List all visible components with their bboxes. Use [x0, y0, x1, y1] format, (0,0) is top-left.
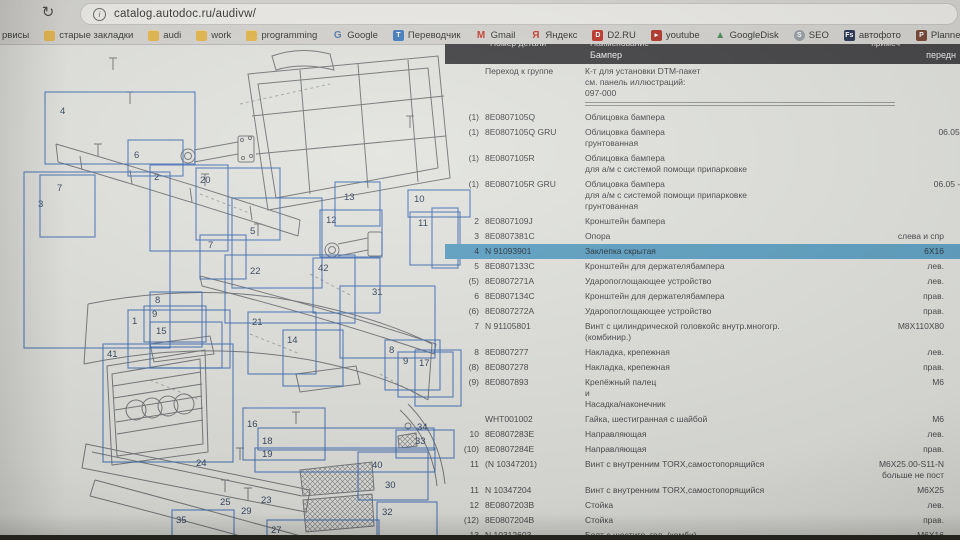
- part-number[interactable]: 8E0807134C: [485, 291, 585, 302]
- callout-number[interactable]: 13: [344, 192, 355, 203]
- part-note: лев.: [784, 500, 960, 511]
- part-description: Облицовка бамперагрунтованная: [585, 127, 784, 149]
- url-text: catalog.autodoc.ru/audivw/: [114, 8, 256, 20]
- callout-box[interactable]: [150, 292, 202, 347]
- row-callout-number: 11: [445, 459, 485, 470]
- bookmark-icon: T: [393, 30, 404, 41]
- row-callout-number: (6): [445, 306, 485, 317]
- part-number[interactable]: 8E0807105Q GRU: [485, 127, 585, 138]
- table-header-clipped-row: Номер детали Наименование примеч: [445, 44, 960, 50]
- parts-diagram: 4367220572212131011423189115211489174116…: [0, 44, 472, 540]
- part-note: прав.: [784, 444, 960, 455]
- section-title: Бампер: [590, 50, 622, 60]
- table-row[interactable]: 28E0807109JКронштейн бампера: [445, 214, 960, 229]
- folder-icon: [246, 30, 257, 41]
- table-row[interactable]: 7N 91105801Винт с цилиндрической головко…: [445, 319, 960, 345]
- part-description: Винт с цилиндрической головкойс внутр.мн…: [585, 321, 784, 343]
- table-row[interactable]: (1)8E0807105Q GRUОблицовка бамперагрунто…: [445, 125, 960, 151]
- part-description: Стойка: [585, 515, 784, 526]
- bookmark-item[interactable]: SSEO: [794, 30, 829, 41]
- row-callout-number: 8: [445, 347, 485, 358]
- callout-box[interactable]: [232, 198, 322, 288]
- bookmark-item[interactable]: рвисы: [2, 30, 29, 41]
- part-number[interactable]: 8E0807278: [485, 362, 585, 373]
- callout-number[interactable]: 11: [418, 218, 428, 229]
- row-callout-number: 11: [445, 485, 485, 496]
- row-callout-number: (8): [445, 362, 485, 373]
- callout-number[interactable]: 9: [403, 356, 408, 367]
- table-row[interactable]: 58E0807133CКронштейн для держателябампер…: [445, 259, 960, 274]
- row-callout-number: (9): [445, 377, 485, 388]
- part-note: М6: [784, 377, 960, 388]
- bookmark-icon: D: [592, 30, 603, 41]
- callout-box[interactable]: [340, 286, 435, 358]
- bookmark-label: автофото: [859, 30, 901, 41]
- callout-number[interactable]: 17: [419, 358, 430, 369]
- part-description: Кронштейн для держателябампера: [585, 261, 784, 272]
- part-description: Ударопоглощающее устройство: [585, 276, 784, 287]
- part-description: Накладка, крепежная: [585, 347, 784, 358]
- bookmark-label: GoogleDisk: [730, 30, 779, 41]
- group-link[interactable]: Переход к группе: [485, 66, 585, 77]
- bookmark-item[interactable]: старые закладки: [44, 30, 133, 41]
- folder-icon: [196, 30, 207, 41]
- part-number[interactable]: 8E0807893: [485, 377, 585, 388]
- callout-box[interactable]: [200, 235, 246, 279]
- part-note: M6X25: [784, 485, 960, 496]
- bookmark-label: Google: [347, 30, 378, 41]
- callout-number[interactable]: 8: [155, 295, 160, 306]
- callout-box[interactable]: [258, 428, 434, 450]
- table-row[interactable]: 128E0807203BСтойкалев.: [445, 498, 960, 513]
- callout-box[interactable]: [283, 330, 343, 386]
- callout-box[interactable]: [385, 340, 440, 390]
- part-description: Кронштейн для держателябампера: [585, 291, 784, 302]
- col-name: Наименование: [590, 44, 649, 48]
- bookmark-label: рвисы: [2, 30, 29, 41]
- callout-box[interactable]: [243, 408, 325, 460]
- callout-number[interactable]: 41: [107, 349, 118, 360]
- callout-number[interactable]: 21: [252, 317, 263, 328]
- bookmark-item[interactable]: ▲GoogleDisk: [715, 30, 779, 41]
- callout-number[interactable]: 20: [200, 175, 211, 186]
- table-row[interactable]: 88E0807277Накладка, крепежнаялев.: [445, 345, 960, 360]
- col-part-number: Номер детали: [490, 44, 546, 48]
- callout-box[interactable]: [225, 255, 355, 323]
- row-callout-number: (1): [445, 153, 485, 164]
- callout-box[interactable]: [377, 502, 437, 538]
- bookmark-label: D2.RU: [607, 30, 636, 41]
- callout-number[interactable]: 32: [382, 507, 393, 518]
- bookmark-item[interactable]: ЯЯндекс: [530, 30, 577, 41]
- part-number[interactable]: (N 10347201): [485, 459, 585, 470]
- callout-number[interactable]: 22: [250, 266, 261, 277]
- callout-number[interactable]: 4: [60, 106, 65, 117]
- callout-box[interactable]: [313, 258, 380, 313]
- part-note: прав.: [784, 515, 960, 526]
- callout-number[interactable]: 6: [134, 150, 139, 161]
- date-range: 06.05 - 0: [938, 127, 960, 138]
- bookmark-item[interactable]: programming: [246, 30, 317, 41]
- table-header: Номер детали Наименование примеч Бампер …: [445, 44, 960, 64]
- row-callout-number: 2: [445, 216, 485, 227]
- bookmark-icon: M: [476, 30, 487, 41]
- callout-box[interactable]: [128, 140, 183, 176]
- callout-box[interactable]: [335, 182, 380, 226]
- table-row[interactable]: 68E0807134CКронштейн для держателябампер…: [445, 289, 960, 304]
- bookmark-item[interactable]: PPlanner 5D - Профи: [916, 30, 960, 41]
- section-right-label: передн: [926, 50, 956, 60]
- callout-number[interactable]: 7: [57, 183, 62, 194]
- callout-box[interactable]: [248, 312, 316, 374]
- callout-box[interactable]: [255, 448, 435, 472]
- bookmarks-bar: рвисыстарые закладкиaudiworkprogrammingG…: [0, 27, 960, 45]
- bookmark-label: audi: [163, 30, 181, 41]
- table-row[interactable]: 108E0807283EНаправляющаялев.: [445, 427, 960, 442]
- row-callout-number: (1): [445, 127, 485, 138]
- table-row[interactable]: WHT001002Гайка, шестигранная с шайбойМ6: [445, 412, 960, 427]
- reload-icon[interactable]: ↻: [38, 3, 58, 23]
- table-row[interactable]: 4N 91093901Заклепка скрытая6X16: [445, 244, 960, 259]
- group-description: К-т для установки DTM-пакетсм. панель ил…: [585, 66, 784, 106]
- table-row[interactable]: (10)8E0807284EНаправляющаяправ.: [445, 442, 960, 457]
- callout-box[interactable]: [45, 92, 195, 164]
- part-number[interactable]: N 91105801: [485, 321, 585, 332]
- bookmark-item[interactable]: DD2.RU: [592, 30, 636, 41]
- bookmark-label: Яндекс: [545, 30, 577, 41]
- callout-number[interactable]: 40: [372, 460, 383, 471]
- part-number[interactable]: 8E0807277: [485, 347, 585, 358]
- bookmark-label: Gmail: [491, 30, 516, 41]
- part-description: Накладка, крепежная: [585, 362, 784, 373]
- bookmark-item[interactable]: ▸youtube: [651, 30, 700, 41]
- callout-box[interactable]: [358, 452, 428, 500]
- part-number[interactable]: 8E0807105Q: [485, 112, 585, 123]
- callout-box[interactable]: [128, 310, 230, 368]
- callout-number[interactable]: 3: [38, 199, 43, 210]
- part-note: прав.: [784, 291, 960, 302]
- callout-box[interactable]: [24, 172, 170, 348]
- table-row[interactable]: (8)8E0807278Накладка, крепежнаяправ.: [445, 360, 960, 375]
- part-description: Направляющая: [585, 429, 784, 440]
- part-description: Облицовка бампера: [585, 112, 784, 123]
- row-callout-number: (12): [445, 515, 485, 526]
- part-description: Винт с внутренним TORX,самостопорящийся: [585, 485, 784, 496]
- callout-number[interactable]: 35: [176, 515, 187, 526]
- part-number[interactable]: WHT001002: [485, 414, 585, 425]
- bookmark-label: старые закладки: [59, 30, 133, 41]
- table-row[interactable]: (9)8E0807893Крепёжный палециНасадка/нако…: [445, 375, 960, 412]
- catalog-page: 4367220572212131011423189115211489174116…: [0, 44, 960, 540]
- table-row[interactable]: 11N 10347204Винт с внутренним TORX,самос…: [445, 483, 960, 498]
- callout-number[interactable]: 30: [385, 480, 396, 491]
- callout-number[interactable]: 31: [372, 287, 383, 298]
- part-number[interactable]: 8E0807284E: [485, 444, 585, 455]
- bookmark-item[interactable]: GGoogle: [332, 30, 378, 41]
- bookmark-icon: P: [916, 30, 927, 41]
- bookmark-icon: Я: [530, 30, 541, 41]
- bookmark-icon: ▸: [651, 30, 662, 41]
- col-note: примеч: [871, 44, 900, 48]
- part-note: 6X16: [784, 246, 960, 257]
- bookmark-item[interactable]: Fsавтофото: [844, 30, 901, 41]
- part-number[interactable]: 8E0807272A: [485, 306, 585, 317]
- table-row[interactable]: (5)8E0807271AУдаропоглощающее устройство…: [445, 274, 960, 289]
- bookmark-item[interactable]: work: [196, 30, 231, 41]
- part-description: Заклепка скрытая: [585, 246, 784, 257]
- row-callout-number: 7: [445, 321, 485, 332]
- table-row[interactable]: (6)8E0807272AУдаропоглощающее устройство…: [445, 304, 960, 319]
- folder-icon: [44, 30, 55, 41]
- part-description: Опора: [585, 231, 784, 242]
- part-number[interactable]: N 10347204: [485, 485, 585, 496]
- part-number[interactable]: 8E0807203B: [485, 500, 585, 511]
- row-callout-number: 4: [445, 246, 485, 257]
- callout-box[interactable]: [150, 165, 228, 251]
- part-note: лев.: [784, 276, 960, 287]
- row-callout-number: 5: [445, 261, 485, 272]
- part-note: M6X25.00-S11-Nбольше не пост: [784, 459, 960, 481]
- bookmark-label: Planner 5D - Профи: [931, 30, 960, 41]
- bookmark-icon: ▲: [715, 30, 726, 41]
- part-number[interactable]: 8E0807109J: [485, 216, 585, 227]
- table-row[interactable]: 11(N 10347201)Винт с внутренним TORX,сам…: [445, 457, 960, 483]
- part-note: прав.: [784, 306, 960, 317]
- table-row[interactable]: (1)8E0807105R GRUОблицовка бамперадля а/…: [445, 177, 960, 214]
- callout-number[interactable]: 5: [250, 226, 255, 237]
- table-row[interactable]: 38E0807381CОпораслева и спр: [445, 229, 960, 244]
- row-callout-number: (1): [445, 112, 485, 123]
- callout-number[interactable]: 15: [156, 326, 167, 337]
- part-description: Винт с внутренним TORX,самостопорящийся: [585, 459, 784, 470]
- bookmark-item[interactable]: TПереводчик: [393, 30, 461, 41]
- callout-number[interactable]: 29: [241, 506, 252, 517]
- callout-number[interactable]: 42: [318, 263, 329, 274]
- part-description: Облицовка бамперадля а/м с системой помо…: [585, 179, 784, 212]
- part-description: Направляющая: [585, 444, 784, 455]
- part-number[interactable]: 8E0807381C: [485, 231, 585, 242]
- bookmark-label: programming: [261, 30, 317, 41]
- callout-number[interactable]: 23: [261, 495, 272, 506]
- bookmark-item[interactable]: MGmail: [476, 30, 516, 41]
- row-callout-number: 12: [445, 500, 485, 511]
- callout-box[interactable]: [196, 168, 280, 240]
- page-info-icon[interactable]: i: [93, 8, 106, 21]
- part-description: Стойка: [585, 500, 784, 511]
- table-row[interactable]: (12)8E0807204BСтойкаправ.: [445, 513, 960, 528]
- part-number[interactable]: 8E0807204B: [485, 515, 585, 526]
- part-note: лев.: [784, 429, 960, 440]
- callout-number[interactable]: 8: [389, 345, 394, 356]
- part-note: M8X110X80: [784, 321, 960, 332]
- callout-number[interactable]: 2: [154, 172, 159, 183]
- callout-number[interactable]: 12: [326, 215, 337, 226]
- table-row[interactable]: (1)8E0807105RОблицовка бамперадля а/м с …: [445, 151, 960, 177]
- browser-window: ↻ i catalog.autodoc.ru/audivw/ рвисыстар…: [0, 0, 960, 540]
- bookmark-icon: Fs: [844, 30, 855, 41]
- bookmark-label: youtube: [666, 30, 700, 41]
- part-description: Крепёжный палециНасадка/наконечник: [585, 377, 784, 410]
- callout-number[interactable]: 16: [247, 419, 258, 430]
- diagram-callouts: 4367220572212131011423189115211489174116…: [24, 92, 470, 540]
- browser-toolbar: ↻ i catalog.autodoc.ru/audivw/: [0, 0, 960, 27]
- row-callout-number: (10): [445, 444, 485, 455]
- row-callout-number: (5): [445, 276, 485, 287]
- callout-number[interactable]: 34: [417, 422, 428, 433]
- callout-box[interactable]: [320, 210, 382, 257]
- monitor-bezel: [0, 535, 960, 540]
- callout-number[interactable]: 9: [152, 309, 157, 320]
- part-description: Кронштейн бампера: [585, 216, 784, 227]
- callout-number[interactable]: 25: [220, 497, 231, 508]
- row-callout-number: 3: [445, 231, 485, 242]
- folder-icon: [148, 30, 159, 41]
- part-note: М6: [784, 414, 960, 425]
- callout-number[interactable]: 18: [262, 436, 273, 447]
- callout-number[interactable]: 33: [415, 436, 426, 447]
- part-number[interactable]: 8E0807105R GRU: [485, 179, 585, 190]
- group-link-row: Переход к группе К-т для установки DTM-п…: [445, 64, 960, 110]
- part-number[interactable]: 8E0807133C: [485, 261, 585, 272]
- part-description: Ударопоглощающее устройство: [585, 306, 784, 317]
- part-description: Гайка, шестигранная с шайбой: [585, 414, 784, 425]
- part-note: прав.: [784, 362, 960, 373]
- part-number[interactable]: 8E0807271A: [485, 276, 585, 287]
- row-callout-number: 10: [445, 429, 485, 440]
- table-row[interactable]: (1)8E0807105QОблицовка бампера: [445, 110, 960, 125]
- parts-table: Переход к группе К-т для установки DTM-п…: [445, 64, 960, 540]
- part-description: Облицовка бамперадля а/м с системой помо…: [585, 153, 784, 175]
- part-note: лев.: [784, 347, 960, 358]
- date-range: 06.05 - 06: [934, 179, 960, 190]
- diagram-sketch: [56, 50, 450, 540]
- bookmark-label: Переводчик: [408, 30, 461, 41]
- part-number[interactable]: 8E0807283E: [485, 429, 585, 440]
- address-bar[interactable]: i catalog.autodoc.ru/audivw/: [80, 3, 958, 25]
- bookmark-icon: S: [794, 30, 805, 41]
- fastener-glyphs: [94, 58, 414, 500]
- bookmark-item[interactable]: audi: [148, 30, 181, 41]
- row-callout-number: 6: [445, 291, 485, 302]
- callout-number[interactable]: 7: [208, 240, 213, 251]
- part-note: слева и спр: [784, 231, 960, 242]
- callout-number[interactable]: 19: [262, 449, 273, 460]
- part-number[interactable]: N 91093901: [485, 246, 585, 257]
- bookmark-label: work: [211, 30, 231, 41]
- bookmark-icon: G: [332, 30, 343, 41]
- row-callout-number: (1): [445, 179, 485, 190]
- callout-number[interactable]: 10: [414, 194, 425, 205]
- callout-box[interactable]: [144, 306, 206, 342]
- part-note: лев.: [784, 261, 960, 272]
- callout-number[interactable]: 1: [132, 316, 137, 327]
- callout-box[interactable]: [150, 322, 222, 368]
- callout-number[interactable]: 24: [196, 458, 207, 469]
- part-number[interactable]: 8E0807105R: [485, 153, 585, 164]
- callout-box[interactable]: [103, 344, 233, 462]
- callout-number[interactable]: 14: [287, 335, 298, 346]
- bookmark-label: SEO: [809, 30, 829, 41]
- callout-box[interactable]: [40, 175, 95, 237]
